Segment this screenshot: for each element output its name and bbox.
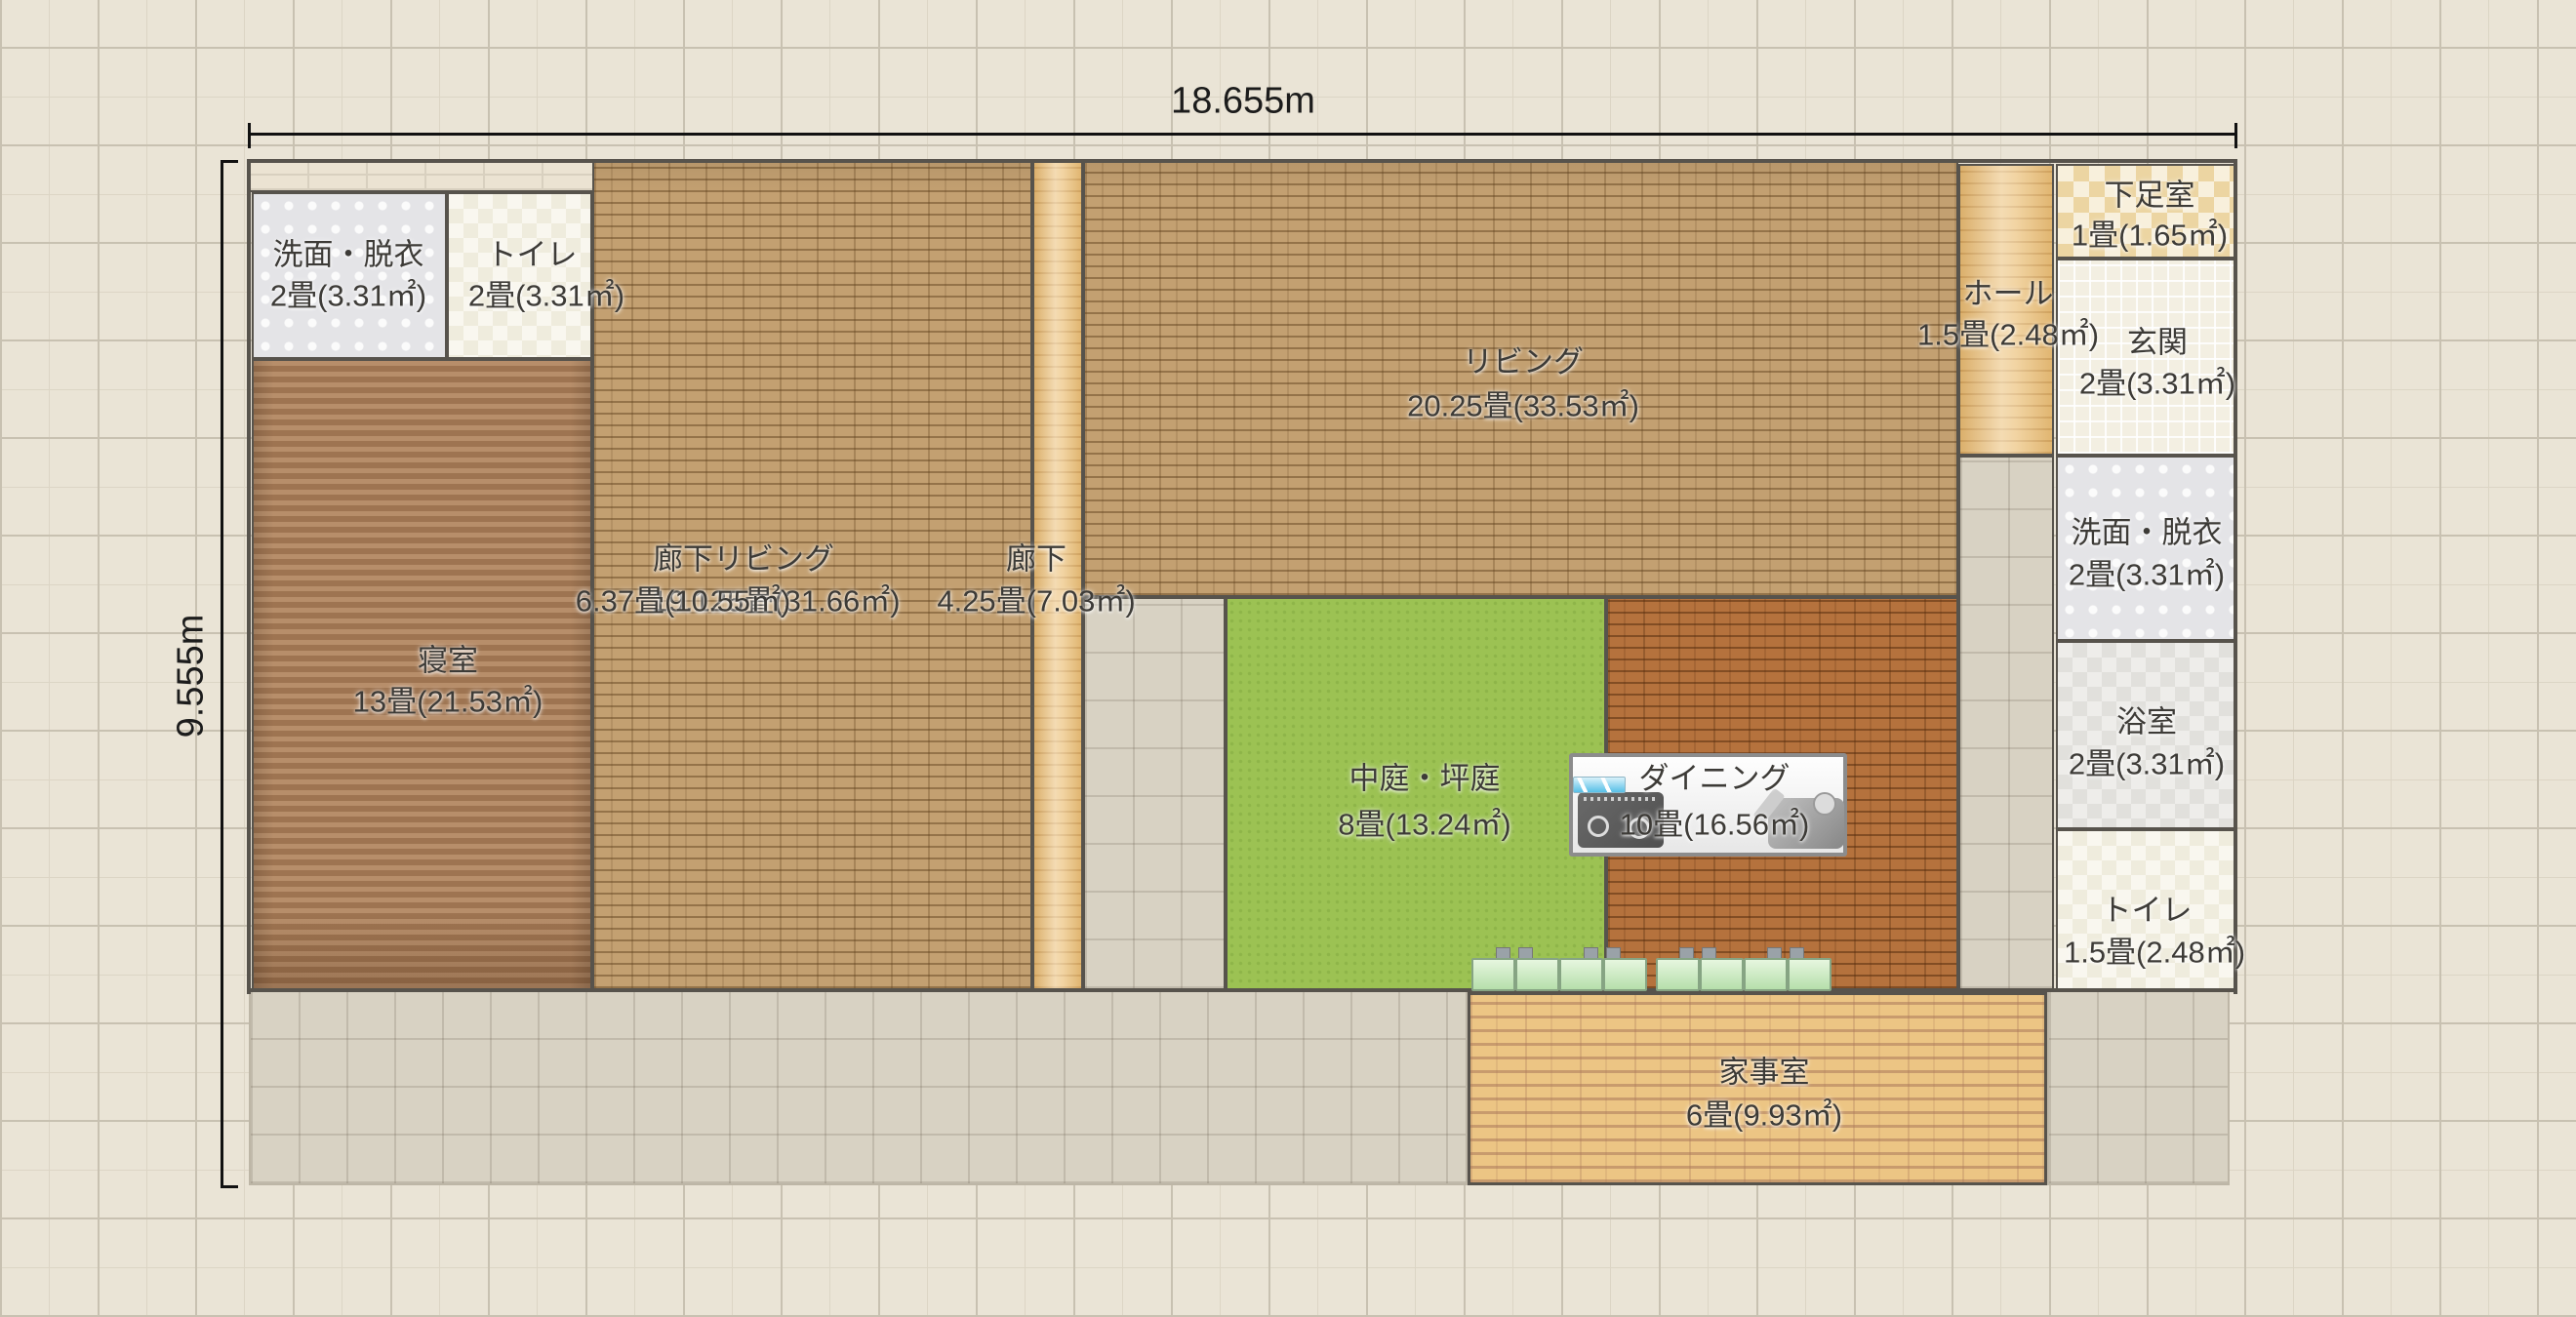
dimension-width-label: 18.655m bbox=[1171, 81, 1315, 123]
camera-lens-icon bbox=[1813, 792, 1836, 816]
dimension-line-left bbox=[221, 161, 223, 1188]
label-courtyard-area: 8畳(13.24㎡) bbox=[1338, 800, 1510, 844]
label-hall-name: ホール bbox=[1963, 269, 2054, 313]
label-toilet-right-name: トイレ bbox=[2102, 886, 2193, 930]
label-bathroom-area: 2畳(3.31㎡) bbox=[2069, 739, 2225, 783]
dimension-height-label: 9.555m bbox=[171, 615, 213, 738]
label-washroom-right-name: 洗面・脱衣 bbox=[2072, 508, 2223, 552]
label-shoe-room-area: 1畳(1.65㎡) bbox=[2072, 211, 2228, 255]
label-shoe-room-name: 下足室 bbox=[2105, 171, 2195, 215]
label-entrance-name: 玄関 bbox=[2127, 318, 2188, 362]
dimension-tick-top-right bbox=[2234, 123, 2237, 148]
label-corridor-name: 廊下 bbox=[1006, 535, 1067, 579]
storage-box[interactable] bbox=[1559, 958, 1603, 991]
storage-box[interactable] bbox=[1603, 958, 1647, 991]
label-hall-area: 1.5畳(2.48㎡) bbox=[1917, 310, 2099, 354]
dimension-tick-top-left bbox=[248, 123, 251, 148]
sink-glass-icon bbox=[1573, 777, 1626, 793]
storage-box[interactable] bbox=[1788, 958, 1831, 991]
label-entrance-area: 2畳(3.31㎡) bbox=[2079, 359, 2235, 403]
label-toilet-right-area: 1.5畳(2.48㎡) bbox=[2064, 928, 2245, 972]
dimension-line-top bbox=[249, 133, 2237, 136]
wall-right bbox=[2234, 159, 2237, 994]
label-dining-area: 10畳(16.56㎡) bbox=[1620, 800, 1810, 844]
storage-box[interactable] bbox=[1515, 958, 1559, 991]
terrace-left[interactable] bbox=[249, 990, 1468, 1185]
label-washroom-right-area: 2畳(3.31㎡) bbox=[2069, 550, 2225, 594]
label-unnamed-mid-area: 6.37畳(10.55㎡) bbox=[576, 577, 791, 620]
stove-burner-icon bbox=[1588, 816, 1609, 837]
wall-left bbox=[247, 159, 251, 994]
terrace-pocket[interactable] bbox=[1083, 597, 1226, 990]
label-utility-name: 家事室 bbox=[1719, 1048, 1810, 1092]
label-corridor-living-name: 廊下リビング bbox=[653, 535, 834, 579]
label-toilet-top-area: 2畳(3.31㎡) bbox=[468, 271, 624, 315]
label-toilet-top-name: トイレ bbox=[487, 230, 578, 274]
label-corridor-area: 4.25畳(7.03㎡) bbox=[937, 577, 1135, 620]
wall-bottom-main bbox=[247, 988, 2237, 992]
wall-top bbox=[247, 159, 2237, 163]
label-utility-area: 6畳(9.93㎡) bbox=[1686, 1091, 1842, 1135]
label-living-area: 20.25畳(33.53㎡) bbox=[1407, 381, 1639, 425]
label-bedroom-area: 13畳(21.53㎡) bbox=[353, 677, 543, 721]
corridor-right-strip[interactable] bbox=[1958, 456, 2054, 990]
label-washroom-top-area: 2畳(3.31㎡) bbox=[270, 271, 426, 315]
label-courtyard-name: 中庭・坪庭 bbox=[1349, 754, 1501, 798]
storage-box[interactable] bbox=[1744, 958, 1788, 991]
storage-box[interactable] bbox=[1471, 958, 1515, 991]
storage-box[interactable] bbox=[1656, 958, 1700, 991]
label-dining-name: ダイニング bbox=[1639, 754, 1791, 798]
label-washroom-top-name: 洗面・脱衣 bbox=[273, 230, 424, 274]
label-living-name: リビング bbox=[1463, 338, 1584, 381]
label-bathroom-name: 浴室 bbox=[2116, 698, 2177, 741]
dimension-tick-left-top bbox=[221, 160, 238, 163]
label-bedroom-name: 寝室 bbox=[418, 636, 478, 680]
storage-box[interactable] bbox=[1700, 958, 1744, 991]
dimension-tick-left-bottom bbox=[221, 1185, 238, 1188]
terrace-right[interactable] bbox=[2047, 990, 2230, 1185]
